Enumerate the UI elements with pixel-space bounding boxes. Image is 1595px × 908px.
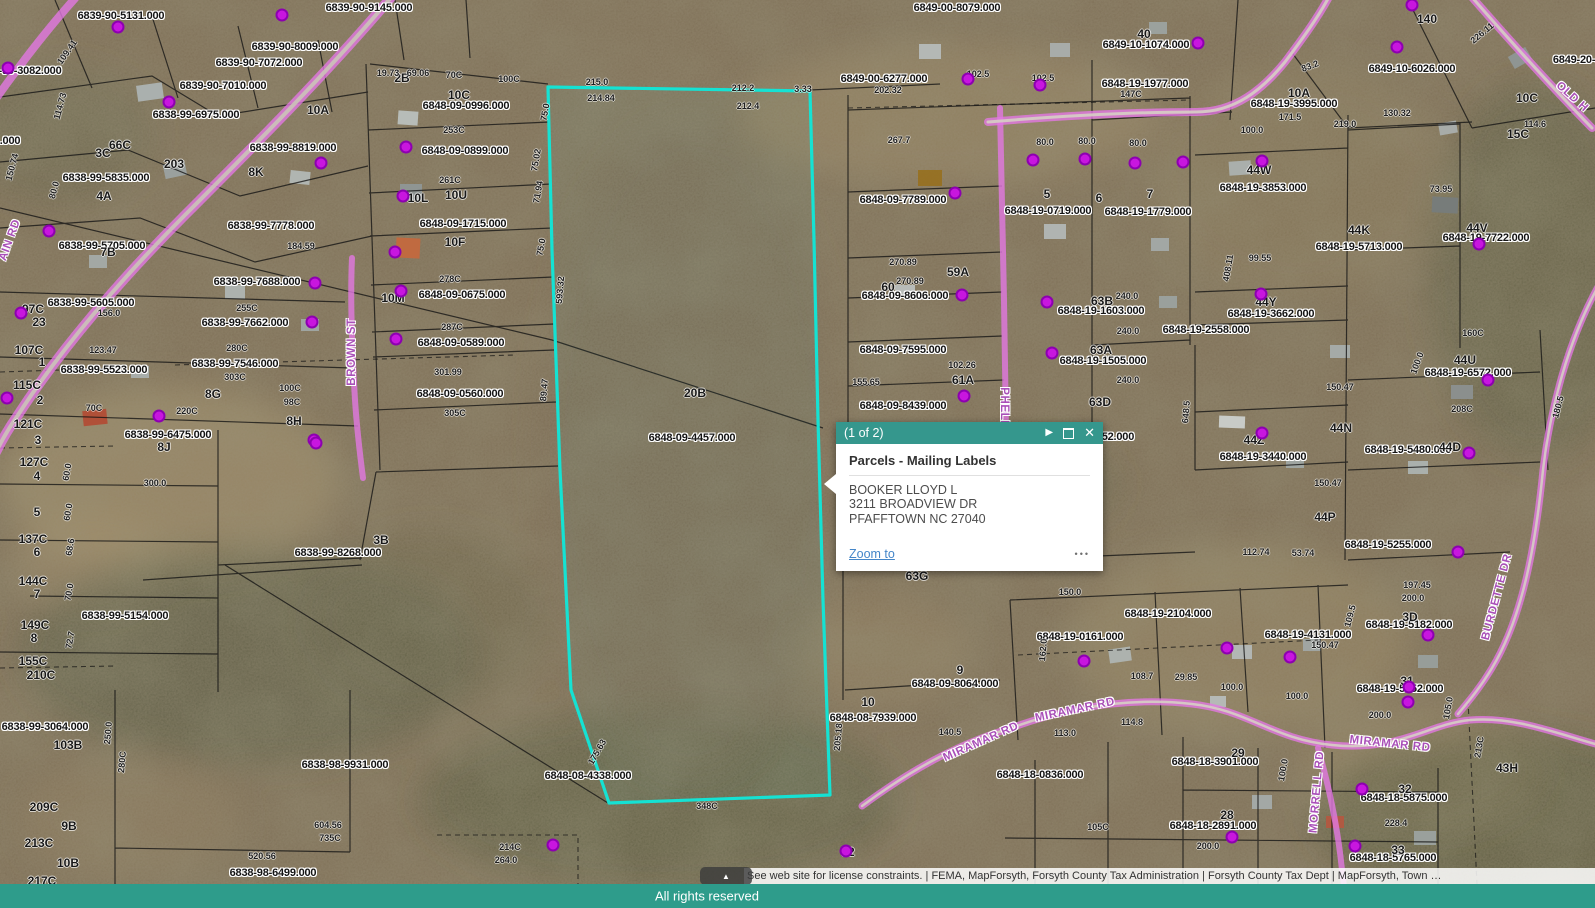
lot-number-label: 10L [408, 191, 429, 205]
parcel-id-label: 6838-99-8268.000 [295, 547, 382, 559]
parcel-point-marker[interactable] [958, 390, 971, 403]
parcel-id-label: 6848-09-0899.000 [422, 145, 509, 157]
parcel-point-marker[interactable] [153, 410, 166, 423]
dimension-label: 70.0 [63, 582, 76, 601]
dimension-label: 205.18 [832, 723, 844, 751]
parcel-id-label: 6839-90-8009.000 [252, 41, 339, 53]
parcel-point-marker[interactable] [112, 21, 125, 34]
dimension-label: 150.74 [4, 152, 21, 181]
lot-number-label: 60 [881, 280, 894, 294]
dimension-label: 213C [1472, 736, 1486, 759]
dimension-label: 53.74 [1292, 548, 1315, 558]
parcel-point-marker[interactable] [1463, 447, 1476, 460]
parcel-id-label: 6848-19-3440.000 [1220, 451, 1307, 463]
parcel-point-marker[interactable] [1284, 651, 1297, 664]
parcel-point-marker[interactable] [397, 190, 410, 203]
feature-popup: (1 of 2) ▶ ✕ Parcels - Mailing Labels BO… [836, 422, 1103, 571]
dimension-label: 109.41 [55, 38, 79, 66]
parcel-id-label: 6838-99-5835.000 [63, 172, 150, 184]
dimension-label: 75.0 [539, 102, 552, 121]
lot-number-label: 8K [248, 165, 263, 179]
dimension-label: 123.47 [89, 345, 117, 355]
lot-number-label: 32 [1398, 782, 1411, 796]
dimension-label: 150.0 [1059, 587, 1082, 597]
dimension-label: 112.74 [1242, 547, 1269, 557]
lot-number-label: 10A [307, 103, 329, 117]
dimension-label: 156.0 [98, 308, 121, 318]
dimension-label: 68.6 [64, 537, 77, 556]
popup-body: Parcels - Mailing Labels BOOKER LLOYD L … [836, 444, 1103, 571]
parcel-id-label: 6848-09-0675.000 [419, 289, 506, 301]
parcel-point-marker[interactable] [309, 277, 322, 290]
dimension-label: 300.0 [144, 478, 167, 488]
maximize-icon[interactable] [1063, 428, 1074, 439]
parcel-id-label: 6848-19-6572.000 [1425, 367, 1512, 379]
dimension-label: 75.0 [535, 237, 548, 256]
dimension-label: 80.0 [1036, 137, 1054, 147]
parcel-point-marker[interactable] [43, 225, 56, 238]
parcel-point-marker[interactable] [1078, 655, 1091, 668]
attribution-toggle-button[interactable]: ▲ [700, 867, 752, 885]
lot-number-label: 4 [34, 469, 41, 483]
parcel-point-marker[interactable] [315, 157, 328, 170]
parcel-point-marker[interactable] [1402, 696, 1415, 709]
dimension-label: 72.7 [64, 630, 77, 649]
dimension-label: 212.2 [732, 83, 755, 93]
lot-number-label: 63G [906, 569, 929, 583]
dimension-label: 278C [439, 274, 461, 284]
parcel-id-label: 6848-09-8439.000 [860, 400, 947, 412]
dimension-label: 305C [444, 408, 466, 418]
dimension-label: 140.5 [939, 727, 962, 737]
parcel-point-marker[interactable] [1027, 154, 1040, 167]
lot-number-label: 3C [95, 146, 110, 160]
dimension-label: 147C [1120, 89, 1142, 99]
lot-number-label: 44P [1314, 510, 1335, 524]
dimension-label: 200.0 [1197, 841, 1220, 851]
dimension-label: 100C [279, 383, 301, 393]
parcel-id-label: 6848-19-3853.000 [1220, 182, 1307, 194]
lot-number-label: 10C [448, 88, 470, 102]
road-name-label: MIRAMAR RD [1349, 734, 1431, 754]
road-name-label: BROWN ST [346, 318, 358, 385]
dimension-label: 114.6 [1524, 119, 1546, 129]
dimension-label: 150.47 [1311, 640, 1339, 650]
dimension-label: 19.73 [377, 68, 400, 78]
lot-number-label: 63D [1089, 395, 1111, 409]
dimension-label: 100.0 [1221, 682, 1244, 692]
parcel-id-label: 6838-99-7778.000 [228, 220, 315, 232]
dimension-label: 70C [86, 403, 103, 413]
lot-number-label: 44N [1330, 421, 1352, 435]
parcel-id-label: 6848-18-2891.000 [1170, 820, 1257, 832]
dimension-label: 219.0 [1334, 119, 1357, 129]
parcel-id-label: 6838-98-9931.000 [302, 759, 389, 771]
lot-number-label: 15C [1507, 127, 1529, 141]
parcel-id-label: 6839-90-5131.000 [78, 10, 165, 22]
lot-number-label: 210C [27, 668, 56, 682]
parcel-point-marker[interactable] [1034, 79, 1047, 92]
dimension-label: 301.99 [434, 367, 462, 377]
lot-number-label: 6 [34, 545, 41, 559]
lot-number-label: 10A [1288, 86, 1310, 100]
dimension-label: 3.33 [794, 84, 812, 94]
lot-number-label: 137C [19, 532, 48, 546]
parcel-id-label: 6848-09-8064.000 [912, 678, 999, 690]
lot-number-label: 3B [373, 533, 388, 547]
lot-number-label: 3D [1402, 610, 1417, 624]
dimension-label: 114.8 [1121, 717, 1143, 727]
lot-number-label: 121C [14, 417, 43, 431]
dimension-label: 98C [284, 397, 301, 407]
lot-number-label: 66C [109, 138, 131, 152]
lot-number-label: 115C [13, 378, 41, 392]
parcel-id-label: 6839-90-9145.000 [326, 2, 413, 14]
parcel-id-label: 6838-99-5523.000 [61, 364, 148, 376]
parcel-point-marker[interactable] [310, 437, 323, 450]
parcel-id-label: 6848-09-7595.000 [860, 344, 947, 356]
lot-number-label: 7 [1147, 187, 1154, 201]
attribution-text: See web site for license constraints. | … [744, 870, 1442, 882]
parcel-point-marker[interactable] [1349, 840, 1362, 853]
lot-number-label: 44U [1454, 353, 1476, 367]
dimension-label: 99.55 [1249, 253, 1272, 263]
parcel-id-label: 6848-19-1977.000 [1102, 78, 1189, 90]
lot-number-label: 3 [35, 433, 42, 447]
dimension-label: 69.06 [407, 68, 430, 78]
lot-number-label: 59A [947, 265, 969, 279]
dimension-label: 212.4 [737, 101, 760, 111]
road-name-label: MORRELL RD [1307, 750, 1326, 833]
popup-pointer [824, 474, 836, 494]
dimension-label: 240.0 [1116, 291, 1139, 301]
parcel-id-label: 6839-90-7072.000 [216, 57, 303, 69]
parcel-id-label: 6838-99-7662.000 [202, 317, 289, 329]
dimension-label: 261C [439, 175, 461, 185]
parcel-id-label: 6838-99-5154.000 [82, 610, 169, 622]
dimension-label: 155.65 [852, 377, 880, 387]
dimension-label: 109.5 [1342, 604, 1357, 628]
city-state-zip: PFAFFTOWN NC 27040 [849, 512, 1090, 526]
parcel-id-label: 6848-19-5255.000 [1345, 539, 1432, 551]
parcel-point-marker[interactable] [962, 73, 975, 86]
dimension-label: 60.0 [62, 502, 75, 521]
parcel-id-label: 6849-20-43 [1553, 54, 1595, 66]
dimension-label: 255C [236, 303, 258, 313]
dimension-label: 240.0 [1117, 375, 1140, 385]
zoom-to-link[interactable]: Zoom to [849, 547, 895, 561]
dimension-label: 105C [1087, 822, 1109, 832]
dimension-label: 70C [446, 70, 463, 80]
dimension-label: 520.56 [248, 851, 276, 861]
dimension-label: 215.0 [586, 77, 609, 87]
dimension-label: 280C [226, 343, 248, 353]
dimension-label: 108.7 [1131, 671, 1154, 681]
dimension-label: 197.45 [1403, 580, 1431, 590]
parcel-point-marker[interactable] [1, 392, 14, 405]
lot-number-label: 10C [1516, 91, 1538, 105]
parcel-point-marker[interactable] [1403, 681, 1416, 694]
parcel-point-marker[interactable] [1356, 783, 1369, 796]
lot-number-label: 155C [19, 654, 48, 668]
popup-pagination: (1 of 2) [844, 426, 1035, 440]
parcel-id-label: 6838-98-6499.000 [230, 867, 317, 879]
lot-number-label: 8G [205, 387, 221, 401]
road-name-label: AIN RD [0, 218, 23, 263]
chevron-up-icon: ▲ [722, 872, 730, 881]
parcel-id-label: 6849-00-8079.000 [914, 2, 1001, 14]
lot-number-label: 10 [861, 695, 874, 709]
map-label-layer: 6839-90-5131.0006839-90-9145.0006839-90-… [0, 0, 1595, 908]
lot-number-label: 63A [1090, 343, 1112, 357]
parcel-point-marker[interactable] [956, 289, 969, 302]
parcel-id-label: 6848-09-0560.000 [417, 388, 504, 400]
dimension-label: 253C [443, 125, 465, 135]
lot-number-label: 61A [952, 373, 974, 387]
parcel-id-label: 6848-09-8606.000 [862, 290, 949, 302]
dimension-label: 80.0 [1078, 136, 1096, 146]
parcel-point-marker[interactable] [1046, 347, 1059, 360]
dimension-label: 180.5 [1550, 395, 1565, 419]
parcel-id-label: 6838-99-7688.000 [214, 276, 301, 288]
close-icon[interactable]: ✕ [1084, 428, 1095, 438]
parcel-id-label: 6839-90-7010.000 [180, 80, 267, 92]
lot-number-label: 33 [1391, 843, 1404, 857]
dimension-label: 71.94 [531, 180, 545, 204]
dimension-label: 270.89 [889, 257, 917, 267]
lot-number-label: 140 [1417, 12, 1437, 26]
parcel-id-label: 6838-99-8819.000 [250, 142, 337, 154]
lot-number-label: 209C [30, 800, 59, 814]
parcel-id-label: 6848-09-7789.000 [860, 194, 947, 206]
lot-number-label: 5 [34, 505, 41, 519]
lot-number-label: 44D [1439, 440, 1461, 454]
parcel-point-marker[interactable] [1473, 238, 1486, 251]
parcel-id-label: 6848-09-1715.000 [420, 218, 507, 230]
parcel-id-label: 6848-08-4338.000 [545, 770, 632, 782]
road-name-label: OLD H [1554, 80, 1591, 115]
parcel-point-marker[interactable] [1041, 296, 1054, 309]
dimension-label: 648.5 [1180, 400, 1192, 423]
dimension-label: 100.0 [1276, 758, 1290, 782]
popup-header[interactable]: (1 of 2) ▶ ✕ [836, 422, 1103, 444]
dimension-label: 202.32 [874, 85, 902, 95]
parcel-point-marker[interactable] [1192, 37, 1205, 50]
lot-number-label: 8 [31, 631, 38, 645]
lot-number-label: 5 [1044, 187, 1051, 201]
parcel-id-label: 6838-99-3064.000 [2, 721, 89, 733]
parcel-id-label: 6848-18-0836.000 [997, 769, 1084, 781]
lot-number-label: 10B [57, 856, 79, 870]
parcel-id-label: 6848-09-4457.000 [649, 432, 736, 444]
lot-number-label: 43H [1496, 761, 1518, 775]
dimension-label: 114.73 [52, 92, 69, 121]
dimension-label: 150.47 [1314, 478, 1342, 488]
dimension-label: 89.47 [538, 378, 550, 401]
lot-number-label: 10U [445, 188, 467, 202]
parcel-point-marker[interactable] [1256, 427, 1269, 440]
lot-number-label: 4A [96, 189, 111, 203]
next-feature-icon[interactable]: ▶ [1045, 428, 1053, 438]
parcel-id-label: 6838-99-7546.000 [192, 358, 279, 370]
dimension-label: 208C [1451, 404, 1473, 414]
lot-number-label: 213C [25, 836, 54, 850]
dimension-label: 228.4 [1385, 818, 1408, 828]
dimension-label: 270.89 [896, 276, 924, 286]
parcel-point-marker[interactable] [1079, 153, 1092, 166]
dimension-label: 593.32 [554, 276, 566, 304]
parcel-id-label: 6838-99-6975.000 [153, 109, 240, 121]
lot-number-label: 8J [157, 440, 170, 454]
parcel-id-label: 6848-19-0719.000 [1005, 205, 1092, 217]
lot-number-label: 7B [100, 245, 115, 259]
dimension-label: 264.0 [495, 855, 518, 865]
dimension-label: 105.0 [1441, 696, 1455, 720]
parcel-point-marker[interactable] [400, 141, 413, 154]
popup-title: Parcels - Mailing Labels [849, 453, 1090, 476]
dimension-label: 73.95 [1430, 184, 1453, 194]
dimension-label: 287C [441, 322, 463, 332]
parcel-id-label: 6848-19-2104.000 [1125, 608, 1212, 620]
lot-number-label: 149C [21, 618, 50, 632]
parcel-point-marker[interactable] [1391, 41, 1404, 54]
dimension-label: 100.0 [1408, 351, 1425, 376]
dimension-label: 29.85 [1175, 672, 1198, 682]
dimension-label: 200.0 [1402, 593, 1425, 603]
road-name-label: BURDETTE DR [1480, 552, 1515, 641]
parcel-point-marker[interactable] [1452, 546, 1465, 559]
lot-number-label: 44K [1348, 223, 1370, 237]
parcel-id-label: 6848-19-0161.000 [1037, 631, 1124, 643]
parcel-point-marker[interactable] [1221, 642, 1234, 655]
parcel-point-marker[interactable] [1406, 0, 1419, 12]
dimension-label: 303C [224, 372, 246, 382]
parcel-point-marker[interactable] [163, 96, 176, 109]
parcel-point-marker[interactable] [1482, 374, 1495, 387]
parcel-point-marker[interactable] [1226, 831, 1239, 844]
lot-number-label: 9B [61, 819, 76, 833]
lot-number-label: 20B [684, 386, 706, 400]
lot-number-label: 28 [1220, 808, 1233, 822]
parcel-id-label: 6849-00-6277.000 [841, 73, 928, 85]
dimension-label: 280C [116, 751, 128, 773]
parcel-point-marker[interactable] [2, 62, 15, 75]
parcel-point-marker[interactable] [306, 316, 319, 329]
dimension-label: 214C [499, 842, 521, 852]
parcel-point-marker[interactable] [1129, 157, 1142, 170]
dimension-label: 75.02 [529, 148, 543, 172]
parcel-id-label: 6849-10-6026.000 [1369, 63, 1456, 75]
dimension-label: 150.47 [1326, 382, 1354, 392]
lot-number-label: 107C [15, 343, 44, 357]
lot-number-label: 29 [1231, 746, 1244, 760]
parcel-point-marker[interactable] [840, 845, 853, 858]
dimension-label: 348C [696, 801, 718, 811]
lot-number-label: 103B [54, 738, 83, 752]
lot-number-label: 127C [20, 455, 49, 469]
parcel-point-marker[interactable] [15, 307, 28, 320]
parcel-id-label: 6848-19-5713.000 [1316, 241, 1403, 253]
dimension-label: 100C [498, 74, 520, 84]
dimension-label: 214.84 [587, 93, 615, 103]
lot-number-label: 9 [957, 663, 964, 677]
dimension-label: 130.32 [1383, 108, 1411, 118]
parcel-point-marker[interactable] [949, 187, 962, 200]
dimension-label: 83.2 [1300, 58, 1320, 73]
parcel-id-label: 6848-19-2558.000 [1163, 324, 1250, 336]
lot-number-label: 203 [164, 157, 184, 171]
dimension-label: 100.0 [1286, 691, 1309, 701]
lot-number-label: 2 [37, 393, 44, 407]
lot-number-label: 23 [32, 315, 45, 329]
dimension-label: 171.5 [1279, 112, 1302, 122]
lot-number-label: 8H [286, 414, 301, 428]
parcel-point-marker[interactable] [1177, 156, 1190, 169]
dimension-label: 267.7 [888, 135, 911, 145]
map-viewer: 6839-90-5131.0006839-90-9145.0006839-90-… [0, 0, 1595, 908]
lot-number-label: 1 [39, 355, 46, 369]
parcel-point-marker[interactable] [547, 839, 560, 852]
parcel-id-label: 6848-19-3662.000 [1228, 308, 1315, 320]
lot-number-label: 6 [1096, 191, 1103, 205]
dimension-label: 184.59 [287, 241, 315, 251]
parcel-point-marker[interactable] [389, 246, 402, 259]
footer-bar: All rights reserved [0, 884, 1595, 908]
parcel-id-label: 6848-19-1779.000 [1105, 206, 1192, 218]
dimension-label: 102.26 [948, 360, 976, 370]
dimension-label: 162.0 [1037, 638, 1049, 661]
dimension-label: 408.11 [1221, 254, 1236, 282]
dimension-label: 80.0 [47, 180, 61, 200]
lot-number-label: 144C [19, 574, 48, 588]
dimension-label: 226.11 [1468, 20, 1495, 45]
parcel-point-marker[interactable] [1422, 629, 1435, 642]
road-name-label: MIRAMAR RD [1034, 696, 1116, 725]
dimension-label: 200.0 [1369, 710, 1392, 720]
dimension-label: 240.0 [1117, 326, 1140, 336]
dimension-label: 250.0 [102, 721, 114, 744]
dimension-label: 160C [1462, 328, 1484, 338]
lot-number-label: 40 [1137, 27, 1150, 41]
parcel-id-label: 6848-18-3901.000 [1172, 756, 1259, 768]
parcel-id-label: 6848-09-0589.000 [418, 337, 505, 349]
attribution-bar: See web site for license constraints. | … [744, 868, 1595, 884]
street-address: 3211 BROADVIEW DR [849, 497, 1090, 511]
dimension-label: 60.0 [61, 462, 74, 481]
dimension-label: 113.0 [1054, 728, 1076, 738]
lot-number-label: 63B [1091, 294, 1113, 308]
lot-number-label: 10F [445, 235, 466, 249]
mailing-address: BOOKER LLOYD L 3211 BROADVIEW DR PFAFFTO… [849, 483, 1090, 526]
parcel-point-marker[interactable] [1256, 155, 1269, 168]
parcel-point-marker[interactable] [390, 333, 403, 346]
parcel-point-marker[interactable] [395, 285, 408, 298]
dimension-label: 100.0 [1241, 125, 1264, 135]
lot-number-label: 7 [34, 587, 41, 601]
footer-text: All rights reserved [655, 889, 759, 904]
parcel-id-label: 6838-99-5605.000 [48, 297, 135, 309]
dimension-label: 175.63 [586, 738, 608, 767]
dimension-label: 735C [319, 833, 341, 843]
dimension-label: 80.0 [1129, 138, 1147, 148]
parcel-id-label: .000 [0, 135, 20, 147]
dimension-label: 604.56 [314, 820, 342, 830]
parcel-point-marker[interactable] [276, 9, 289, 22]
lot-number-label: 44V [1466, 221, 1487, 235]
more-actions-icon[interactable]: ••• [1075, 549, 1090, 559]
owner-name: BOOKER LLOYD L [849, 483, 1090, 497]
parcel-point-marker[interactable] [1255, 288, 1268, 301]
